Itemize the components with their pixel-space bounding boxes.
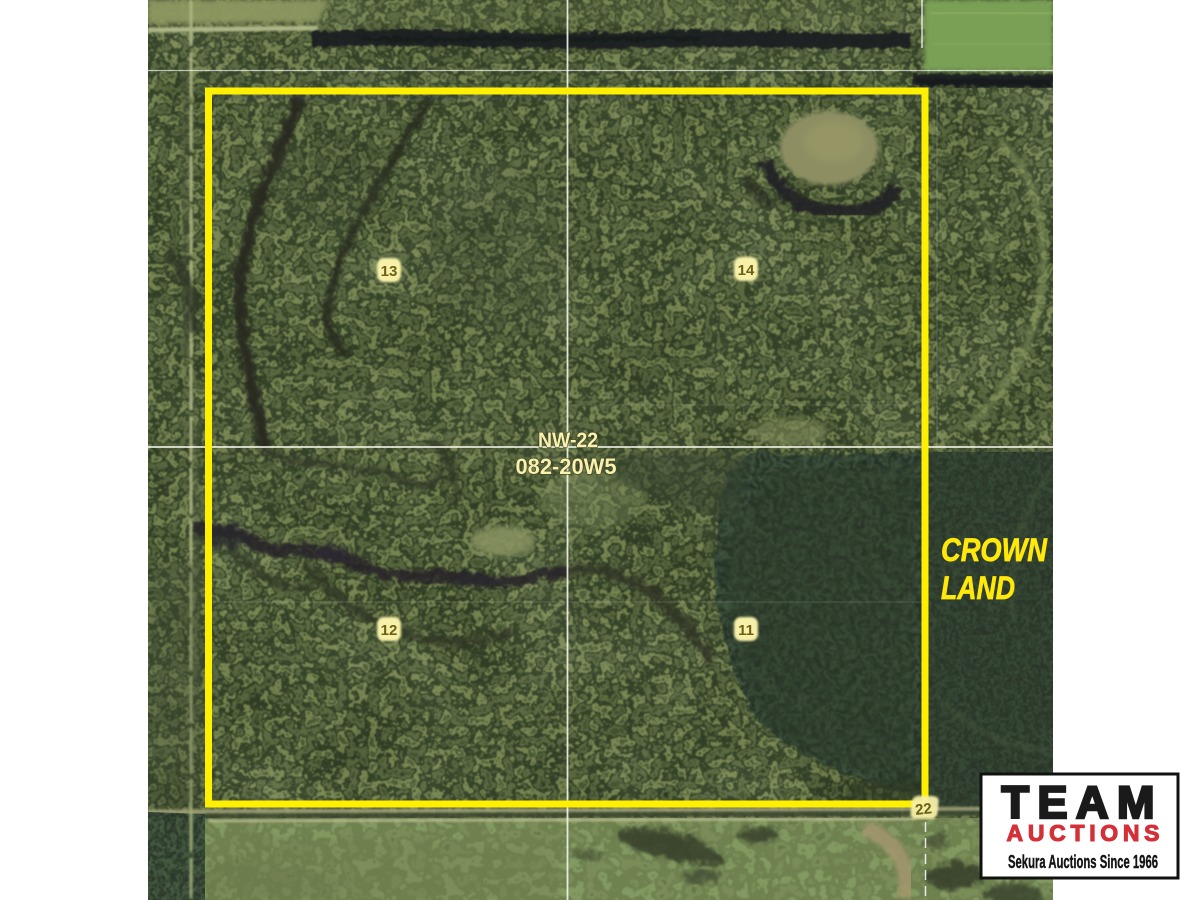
svg-text:082-20W5: 082-20W5 bbox=[516, 454, 617, 479]
svg-text:Sekura Auctions Since 1966: Sekura Auctions Since 1966 bbox=[1008, 852, 1158, 872]
svg-text:11: 11 bbox=[738, 622, 754, 639]
svg-text:AUCTIONS: AUCTIONS bbox=[1007, 820, 1160, 846]
svg-text:12: 12 bbox=[381, 622, 398, 639]
svg-text:13: 13 bbox=[381, 263, 398, 280]
svg-text:CROWN: CROWN bbox=[941, 532, 1048, 568]
svg-text:LAND: LAND bbox=[941, 570, 1015, 606]
svg-text:22: 22 bbox=[914, 800, 932, 819]
svg-text:NW-22: NW-22 bbox=[538, 429, 598, 452]
svg-text:14: 14 bbox=[738, 262, 755, 279]
